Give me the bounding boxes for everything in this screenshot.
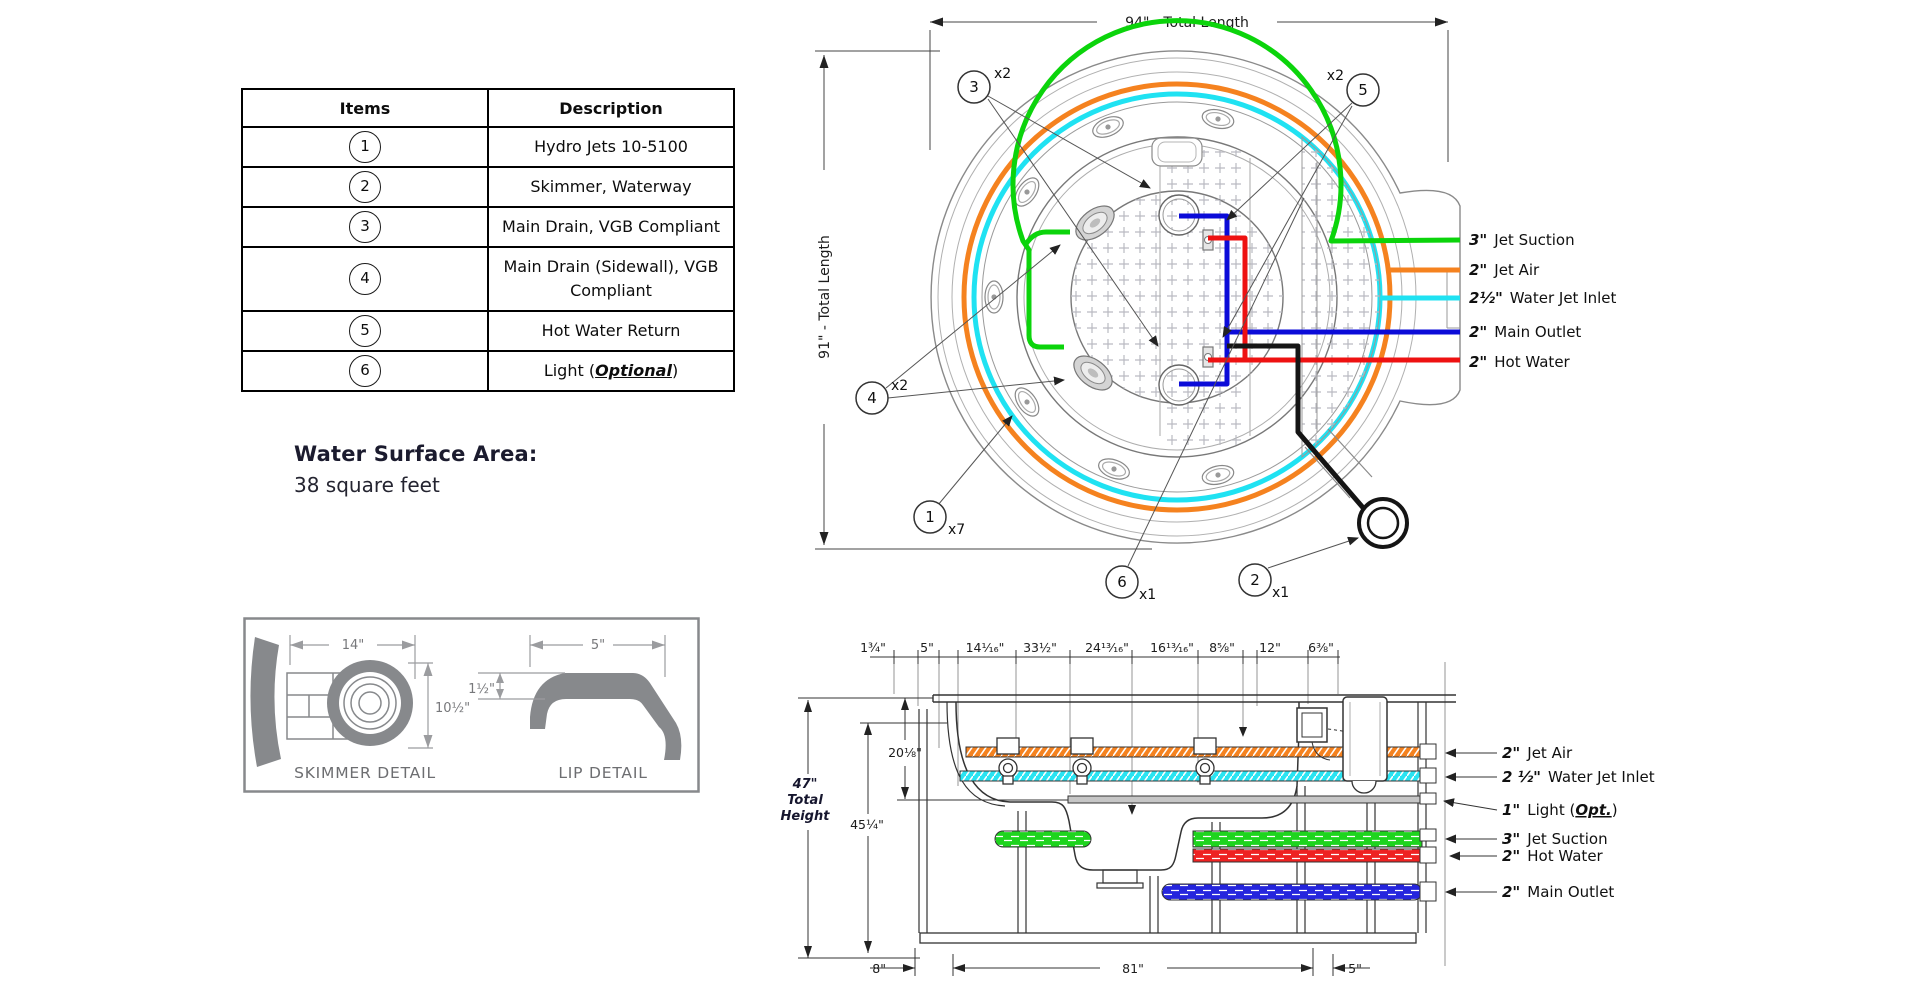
balloon-number: 3 (969, 78, 979, 96)
item-number-badge: 2 (349, 171, 381, 203)
legend-item: 2"Hot Water (1469, 353, 1571, 371)
dim-label: 6⅜" (1308, 640, 1334, 655)
dim-20-label: 20⅛" (888, 745, 922, 760)
parts-table: Items Description 1 Hydro Jets 10-5100 2… (241, 88, 735, 392)
dim-label: 24¹³⁄₁₆" (1085, 640, 1129, 655)
water-surface-area-block: Water Surface Area: 38 square feet (294, 442, 538, 497)
balloon-number: 4 (867, 389, 877, 407)
main-outlet-pipe (1162, 884, 1422, 900)
top-view-legend: 3"Jet Suction 2"Jet Air 2½"Water Jet Inl… (1469, 231, 1617, 371)
skimmer-body (1343, 697, 1387, 793)
pipe-end-caps (1420, 744, 1436, 901)
total-height-dim: 47" (792, 777, 818, 792)
top-dim-labels: 1¾" 5" 14¹⁄₁₆" 33½" 24¹³⁄₁₆" 16¹³⁄₁₆" 8⅝… (860, 640, 1334, 655)
item-number-badge: 4 (349, 263, 381, 295)
legend-item: 3"Jet Suction (1469, 231, 1575, 249)
dim-label: 8" (872, 961, 886, 976)
table-row: 4 Main Drain (Sidewall), VGB Compliant (242, 247, 734, 311)
headrest (1152, 138, 1202, 166)
balloon-qty: x2 (994, 66, 1011, 82)
dim-label: 5" (1348, 961, 1362, 976)
dim-label: 8⅝" (1209, 640, 1235, 655)
item-number-badge: 5 (349, 315, 381, 347)
legend-item: 2 ½"Water Jet Inlet (1502, 768, 1655, 786)
table-row: 5 Hot Water Return (242, 311, 734, 351)
dim-label: 81" (1122, 961, 1144, 976)
dim-label: 5" (920, 640, 934, 655)
detail-inset-diagram: 14" 10½" SKIMMER DETAIL 5" 1½" LIP DETAI… (243, 617, 700, 793)
dim-label: 12" (1259, 640, 1281, 655)
dim-45-label: 45¼" (850, 817, 884, 832)
base-runner (920, 933, 1416, 943)
item-number-badge: 6 (349, 355, 381, 387)
dim-label: 1¾" (860, 640, 886, 655)
dim-label: 16¹³⁄₁₆" (1150, 640, 1194, 655)
balloon-number: 1 (925, 508, 935, 526)
water-surface-area-value: 38 square feet (294, 473, 538, 497)
balloon-3: 3 x2 (958, 66, 1011, 103)
legend-item: 2"Main Outlet (1502, 883, 1614, 901)
balloon-number: 2 (1250, 571, 1260, 589)
light-conduit (1068, 796, 1422, 803)
water-surface-area-label: Water Surface Area: (294, 442, 538, 466)
item-description: Hot Water Return (488, 311, 734, 351)
legend-item: 2½"Water Jet Inlet (1469, 289, 1617, 307)
dim-label: 33½" (1023, 640, 1057, 655)
total-height-dim: Total (787, 793, 823, 808)
dim-total-length-left: 91" - Total Length (817, 235, 833, 359)
jet-suction-pipe-right (1193, 831, 1422, 847)
balloon-1: 1 x7 (914, 501, 965, 538)
balloon-number: 6 (1117, 573, 1127, 591)
parts-table-block: Items Description 1 Hydro Jets 10-5100 2… (241, 88, 735, 392)
balloon-qty: x1 (1139, 587, 1156, 603)
item-description: Hydro Jets 10-5100 (488, 127, 734, 167)
balloon-qty: x2 (891, 378, 908, 394)
jet-suction-branch (1026, 232, 1070, 244)
legend-item: 2"Main Outlet (1469, 323, 1581, 341)
balloon-qty: x2 (1327, 68, 1344, 84)
parts-table-header-items: Items (242, 89, 488, 127)
legend-item: 1"Light (Opt.) (1502, 801, 1618, 819)
item-description: Light (Optional) (488, 351, 734, 391)
balloon-5: 5 x2 (1327, 68, 1379, 106)
legend-item: 2"Jet Air (1502, 744, 1573, 762)
balloon-6: 6 x1 (1106, 566, 1156, 603)
hot-water-pipe (1193, 849, 1422, 862)
drawing-sheet: { "parts_table": { "headers": ["Items", … (0, 0, 1921, 1000)
dim-label: 14¹⁄₁₆" (966, 640, 1005, 655)
table-row: 1 Hydro Jets 10-5100 (242, 127, 734, 167)
item-description: Skimmer, Waterway (488, 167, 734, 207)
item-number-badge: 3 (349, 211, 381, 243)
jet-suction-pipe-left (995, 831, 1091, 847)
table-row: 3 Main Drain, VGB Compliant (242, 207, 734, 247)
item-description: Main Drain, VGB Compliant (488, 207, 734, 247)
legend-item: 3"Jet Suction (1502, 830, 1608, 848)
skimmer-detail-label: SKIMMER DETAIL (294, 764, 436, 782)
left-dimensions (798, 698, 1068, 958)
table-row: 6 Light (Optional) (242, 351, 734, 391)
balloon-4: 4 x2 (856, 378, 908, 414)
item-description: Main Drain (Sidewall), VGB Compliant (488, 247, 734, 311)
skimmer-width-dim: 14" (342, 638, 365, 653)
top-view-diagram: 94" - Total Length 91" - Total Length (812, 0, 1682, 632)
parts-table-header-description: Description (488, 89, 734, 127)
balloon-qty: x7 (948, 522, 965, 538)
legend-item: 2"Jet Air (1469, 261, 1540, 279)
legend-leaders (1444, 753, 1497, 892)
table-row: 2 Skimmer, Waterway (242, 167, 734, 207)
lip-detail-label: LIP DETAIL (558, 764, 647, 782)
bottom-dimensions (870, 948, 1370, 976)
lip-height-dim: 1½" (468, 682, 495, 697)
lip-width-dim: 5" (591, 638, 605, 653)
side-view-diagram: 1¾" 5" 14¹⁄₁₆" 33½" 24¹³⁄₁₆" 16¹³⁄₁₆" 8⅝… (770, 636, 1720, 998)
legend-item: 2"Hot Water (1502, 847, 1604, 865)
balloon-qty: x1 (1272, 585, 1289, 601)
side-view-legend: 2"Jet Air 2 ½"Water Jet Inlet 1"Light (O… (1502, 744, 1655, 901)
balloon-number: 5 (1358, 81, 1368, 99)
item-number-badge: 1 (349, 131, 381, 163)
total-height-dim: Height (781, 809, 831, 824)
balloon-2: 2 x1 (1239, 564, 1289, 601)
skimmer-height-dim: 10½" (435, 701, 470, 716)
